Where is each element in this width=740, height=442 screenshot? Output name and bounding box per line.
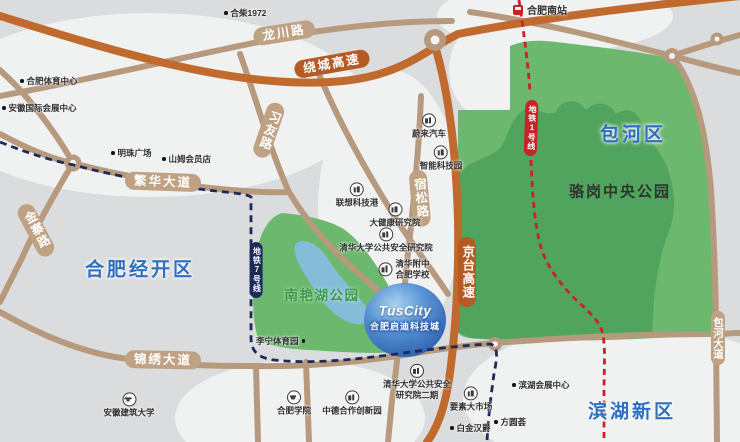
building-icon bbox=[434, 145, 448, 159]
poi-label: 李宁体育园 bbox=[256, 335, 299, 347]
building-icon bbox=[378, 262, 392, 276]
road-label: 锦绣大道 bbox=[134, 352, 192, 367]
poi-dot-icon bbox=[512, 383, 516, 387]
poi-label: 合肥南站 bbox=[527, 2, 567, 17]
poi-dot-icon bbox=[162, 157, 166, 161]
poi-label: 合肥学校 bbox=[395, 269, 429, 280]
district-label-baohe: 包河区 bbox=[600, 120, 666, 147]
poi-dot-icon bbox=[2, 106, 6, 110]
road-badge-fanhua-ave: 繁华大道 bbox=[125, 171, 202, 192]
poi-label: 安徽国际会展中心 bbox=[9, 102, 77, 114]
poi-label: 白金汉爵 bbox=[457, 422, 491, 434]
building-icon bbox=[464, 386, 478, 400]
poi-tsinghua-safety-phase2: 清华大学公共安全研究院二期 bbox=[383, 364, 451, 400]
poi-lining-sports-park: 李宁体育园 bbox=[256, 335, 305, 347]
poi-hechai-1972: 合柴1972 bbox=[224, 7, 266, 19]
road-badge-baohe-ave: 包河大道 bbox=[711, 311, 725, 365]
poi-label: 清华大学公共安全 bbox=[383, 379, 451, 390]
poi-sino-german-park: 中德合作创新园 bbox=[322, 390, 382, 415]
poi-yaosu-market: 要素大市场 bbox=[450, 386, 493, 411]
poi-dot-icon bbox=[450, 426, 454, 430]
poi-label: 合柴1972 bbox=[231, 7, 267, 19]
graduation-cap-icon bbox=[287, 390, 301, 404]
road-label: 京台高速 bbox=[460, 245, 474, 299]
road-label: 繁华大道 bbox=[134, 174, 192, 190]
metro-badge-line1: 地铁1号线 bbox=[524, 100, 539, 156]
poi-label: 滨湖会展中心 bbox=[519, 379, 570, 391]
poi-label: 大健康研究院 bbox=[369, 217, 420, 227]
metro-badge-line7: 地铁7号线 bbox=[250, 242, 263, 298]
poi-baijinhanjue: 白金汉爵 bbox=[450, 422, 491, 434]
project-brand: TusCity bbox=[379, 304, 432, 319]
building-icon bbox=[379, 227, 393, 241]
project-name: 合肥启迪科技城 bbox=[370, 320, 440, 333]
building-icon bbox=[422, 113, 436, 127]
building-icon bbox=[350, 182, 364, 196]
poi-label: 明珠广场 bbox=[118, 147, 152, 159]
poi-label: 合肥体育中心 bbox=[27, 75, 78, 87]
park-label-luogang: 骆岗中央公园 bbox=[569, 181, 671, 202]
hefei-area-map: 龙川路 绕城高速 习友路 繁华大道 金寨路 锦绣大道 宿松路 京台高速 包河大道… bbox=[0, 0, 740, 442]
poi-tsinghua-safety-institute: 清华大学公共安全研究院 bbox=[339, 227, 433, 252]
poi-fangyuanhui: 方圆荟 bbox=[494, 416, 526, 428]
poi-nio: 蔚来汽车 bbox=[412, 113, 446, 138]
poi-tsinghua-high-school: 清华附中合肥学校 bbox=[378, 258, 429, 279]
district-label-jingkaiqu: 合肥经开区 bbox=[85, 255, 195, 282]
road-badge-jinxiu-ave: 锦绣大道 bbox=[125, 350, 201, 370]
poi-binhu-convention-center: 滨湖会展中心 bbox=[512, 379, 570, 391]
building-icon bbox=[345, 390, 359, 404]
metro-label: 地铁1号线 bbox=[527, 105, 538, 151]
poi-anhui-jianzhu-university: 安徽建筑大学 bbox=[103, 392, 154, 417]
poi-dot-icon bbox=[111, 151, 115, 155]
poi-label: 清华附中 bbox=[395, 258, 429, 269]
poi-label: 要素大市场 bbox=[450, 401, 493, 411]
building-icon bbox=[388, 202, 402, 216]
road-label: 包河大道 bbox=[712, 317, 724, 359]
road-badge-jingtai-expwy: 京台高速 bbox=[458, 237, 476, 307]
poi-label: 蔚来汽车 bbox=[412, 128, 446, 138]
building-icon bbox=[410, 364, 424, 378]
poi-label: 方圆荟 bbox=[501, 416, 527, 428]
poi-smart-tech-park: 智能科技园 bbox=[420, 145, 463, 170]
poi-label: 山姆会员店 bbox=[169, 153, 212, 165]
poi-label: 清华大学公共安全研究院 bbox=[339, 242, 433, 252]
park-label-nanyanhu: 南艳湖公园 bbox=[285, 284, 360, 304]
poi-hefei-university: 合肥学院 bbox=[277, 390, 311, 415]
graduation-cap-icon bbox=[122, 392, 136, 406]
poi-label: 研究院二期 bbox=[383, 390, 451, 401]
metro-label: 地铁7号线 bbox=[252, 247, 261, 293]
poi-health-institute: 大健康研究院 bbox=[369, 202, 420, 227]
poi-sams-club: 山姆会员店 bbox=[162, 153, 211, 165]
poi-label: 中德合作创新园 bbox=[322, 405, 382, 415]
poi-label: 安徽建筑大学 bbox=[103, 407, 154, 417]
poi-label: 智能科技园 bbox=[420, 160, 463, 170]
poi-convention-center: 安徽国际会展中心 bbox=[2, 102, 77, 114]
district-label-binhu: 滨湖新区 bbox=[588, 397, 676, 424]
train-icon bbox=[513, 5, 523, 15]
poi-mingzhu-square: 明珠广场 bbox=[111, 147, 152, 159]
poi-dot-icon bbox=[20, 79, 24, 83]
poi-label: 合肥学院 bbox=[277, 405, 311, 415]
poi-hefei-south-station: 合肥南站 bbox=[513, 2, 567, 17]
poi-dot-icon bbox=[494, 420, 498, 424]
poi-dot-icon bbox=[302, 339, 306, 343]
poi-sports-center: 合肥体育中心 bbox=[20, 75, 78, 87]
poi-dot-icon bbox=[224, 11, 228, 15]
